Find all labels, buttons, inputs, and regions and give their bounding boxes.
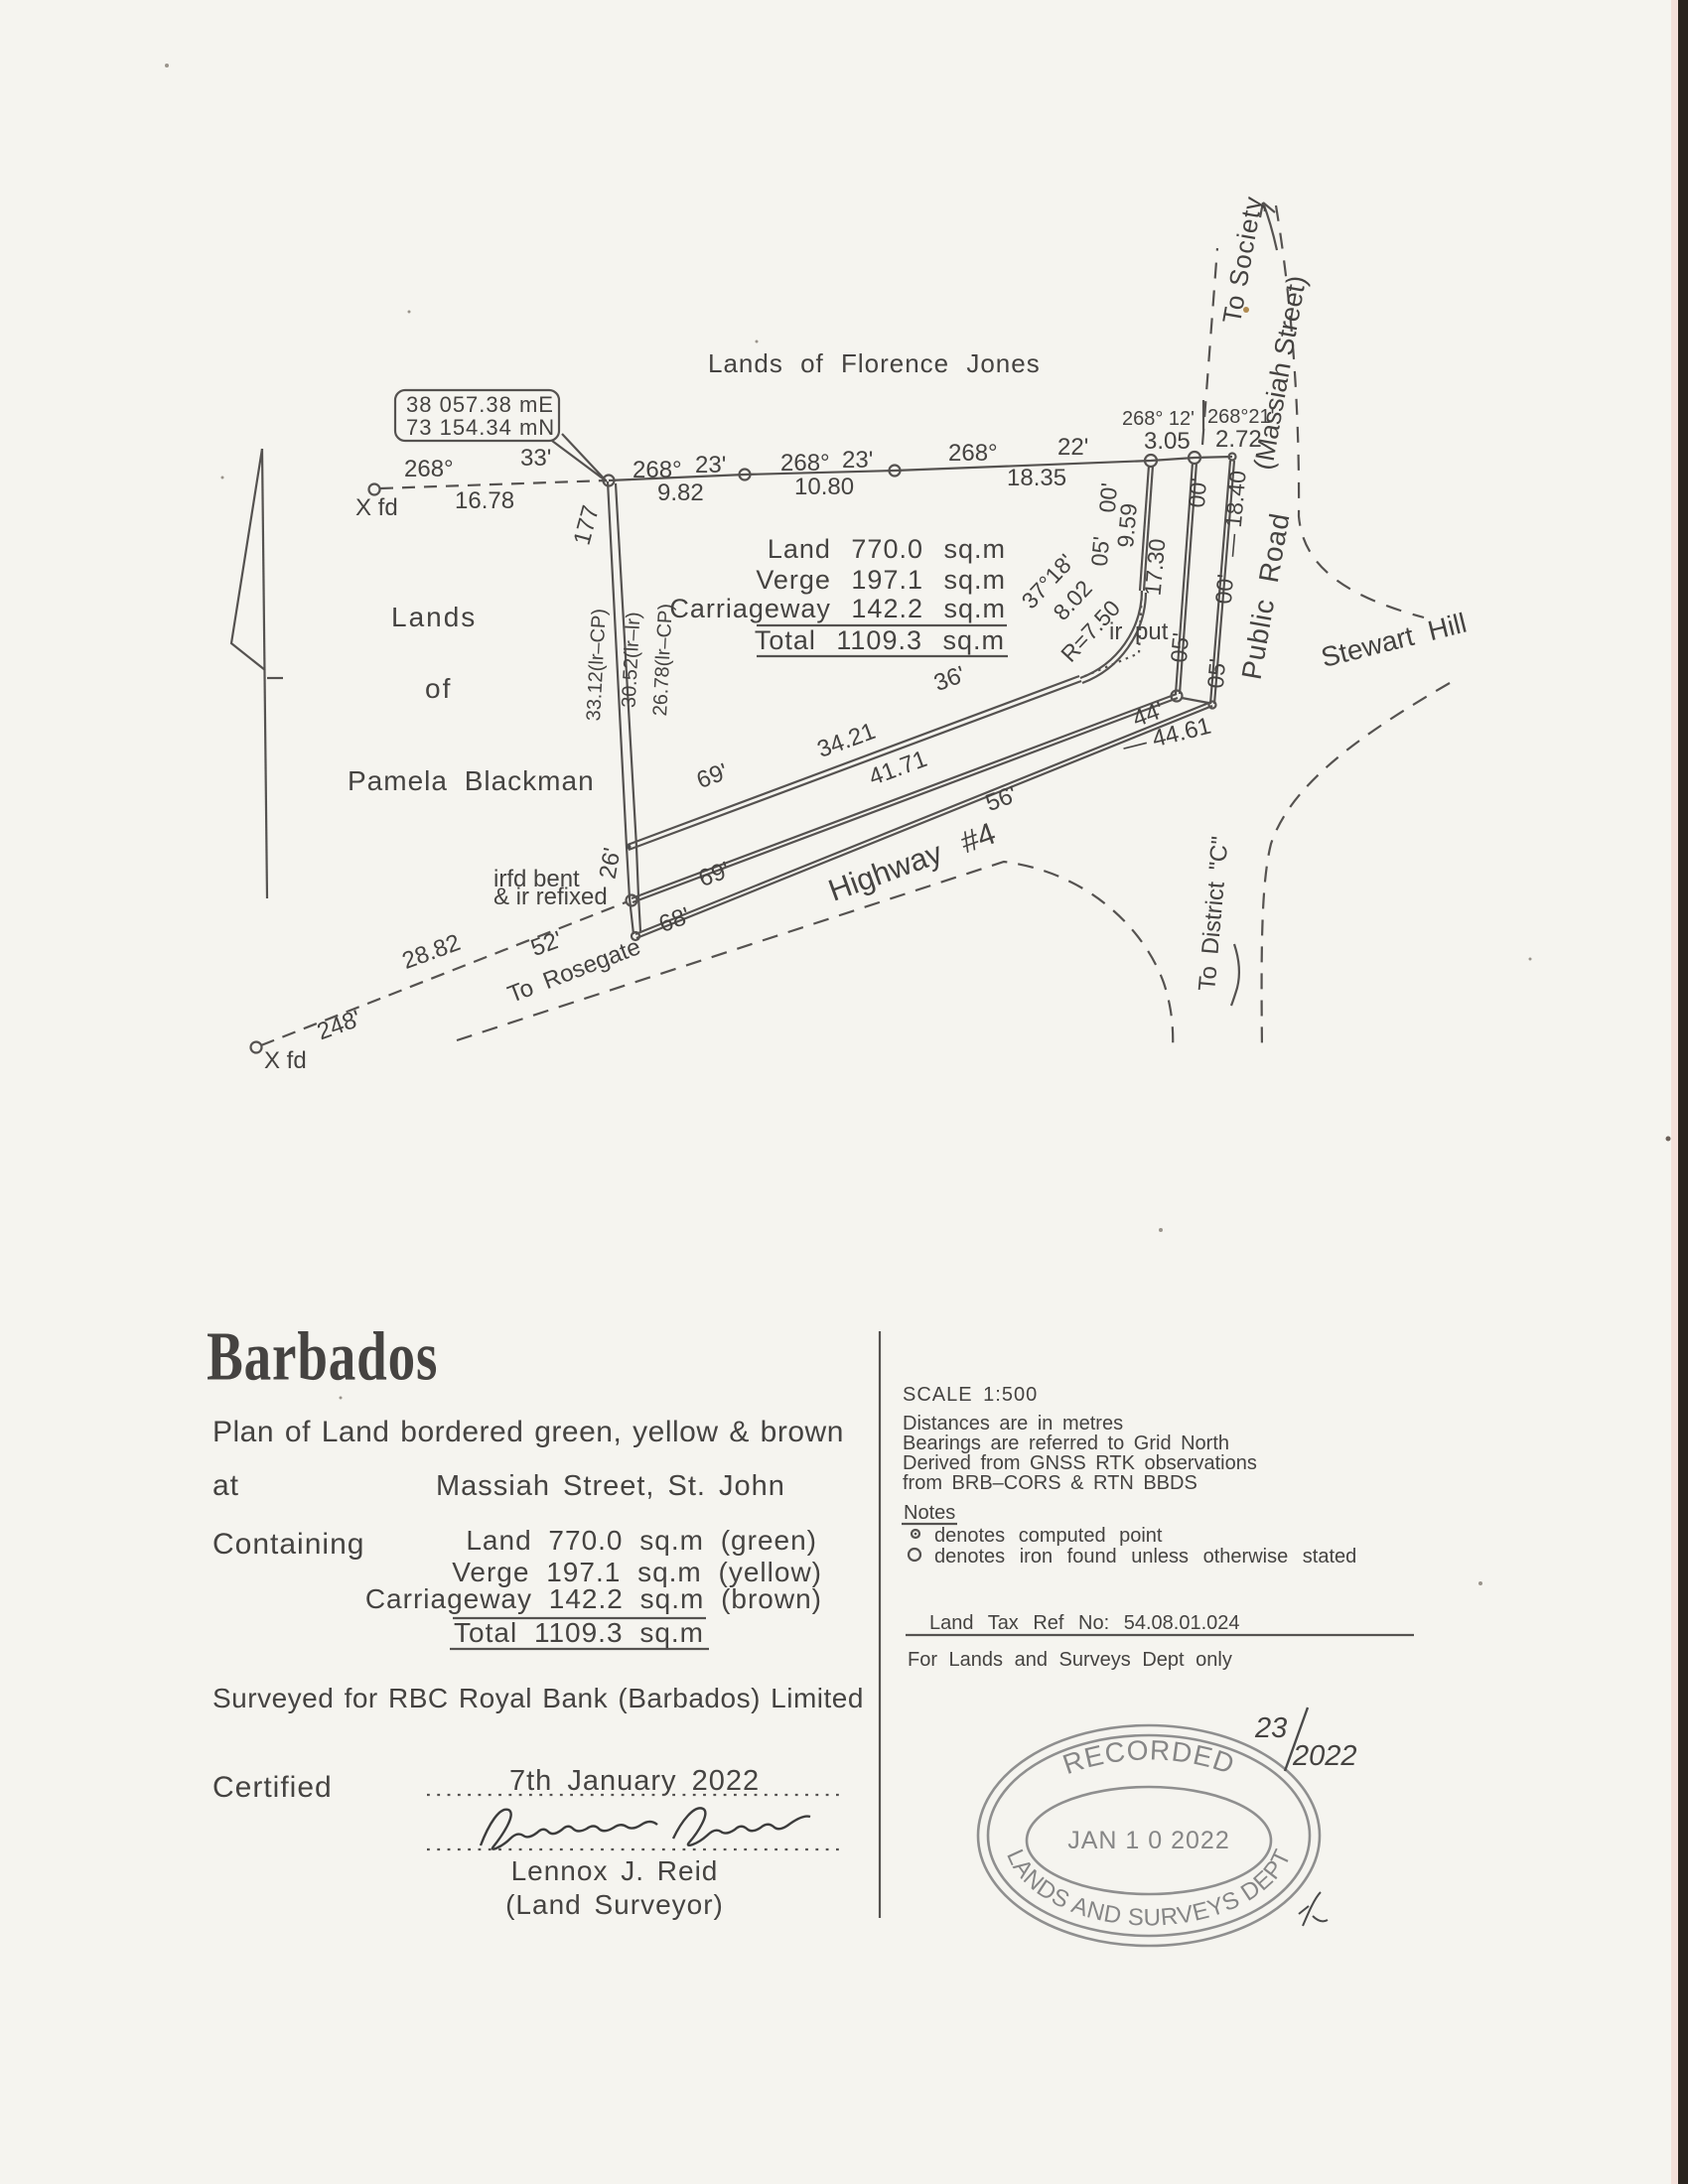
svg-text:9.82: 9.82 <box>657 479 704 506</box>
svg-text:23: 23 <box>1254 1712 1287 1744</box>
svg-text:Total 1109.3 sq.m: Total 1109.3 sq.m <box>454 1617 704 1648</box>
svg-text:268°: 268° <box>780 450 830 477</box>
svg-text:33': 33' <box>520 445 551 472</box>
svg-text:268°: 268° <box>948 440 998 467</box>
svg-text:Land 770.0 sq.m: Land 770.0 sq.m <box>768 534 1006 564</box>
svg-text:(Land Surveyor): (Land Surveyor) <box>505 1889 724 1920</box>
svg-text:Containing: Containing <box>212 1528 364 1561</box>
svg-text:9.59: 9.59 <box>1112 502 1142 549</box>
svg-text:73 154.34 mN: 73 154.34 mN <box>406 415 555 440</box>
svg-text:Carriageway 142.2 sq.m: Carriageway 142.2 sq.m <box>669 594 1006 623</box>
svg-text:22': 22' <box>1057 434 1088 461</box>
svg-text:268°: 268° <box>404 456 454 482</box>
svg-text:Land 770.0 sq.m (green): Land 770.0 sq.m (green) <box>466 1525 817 1556</box>
svg-text:from BRB–CORS & RTN BBDS: from BRB–CORS & RTN BBDS <box>903 1472 1197 1494</box>
svg-text:17.30: 17.30 <box>1140 537 1171 597</box>
svg-text:Lennox J. Reid: Lennox J. Reid <box>511 1855 719 1886</box>
svg-text:Land Tax Ref No: 54.08.01.024: Land Tax Ref No: 54.08.01.024 <box>929 1612 1240 1634</box>
svg-text:JAN 1 0 2022: JAN 1 0 2022 <box>1067 1827 1230 1854</box>
svg-text:00': 00' <box>1184 477 1212 508</box>
svg-text:X fd: X fd <box>355 494 398 521</box>
svg-text:Pamela Blackman: Pamela Blackman <box>348 765 595 796</box>
svg-text:Distances are in metres: Distances are in metres <box>903 1413 1123 1434</box>
svg-text:Barbados: Barbados <box>207 1317 438 1395</box>
svg-text:2022: 2022 <box>1292 1740 1357 1772</box>
svg-text:Total 1109.3 sq.m: Total 1109.3 sq.m <box>755 625 1005 655</box>
svg-text:7th January 2022: 7th January 2022 <box>509 1765 760 1797</box>
svg-text:of: of <box>425 673 452 704</box>
svg-text:Surveyed for RBC Royal Bank (B: Surveyed for RBC Royal Bank (Barbados) L… <box>212 1683 864 1713</box>
svg-text:SCALE 1:500: SCALE 1:500 <box>903 1384 1038 1406</box>
svg-text:Lands of Florence Jones: Lands of Florence Jones <box>708 348 1041 378</box>
svg-text:Lands: Lands <box>391 602 477 632</box>
svg-text:Notes: Notes <box>904 1502 955 1524</box>
svg-text:Carriageway 142.2 sq.m (bro: Carriageway 142.2 sq.m (brown) <box>365 1583 822 1614</box>
svg-text:& ir refixed: & ir refixed <box>493 884 608 910</box>
svg-text:at: at <box>212 1469 239 1502</box>
svg-text:05': 05' <box>1086 535 1115 567</box>
svg-text:23': 23' <box>695 452 726 478</box>
svg-text:Massiah Street, St. John: Massiah Street, St. John <box>436 1470 785 1502</box>
svg-text:denotes iron found unless othe: denotes iron found unless otherwise stat… <box>934 1546 1356 1568</box>
svg-text:denotes computed point: denotes computed point <box>934 1525 1163 1547</box>
svg-text:26': 26' <box>595 846 627 881</box>
svg-text:For Lands and Surveys Dept onl: For Lands and Surveys Dept only <box>908 1649 1232 1671</box>
svg-text:18.35: 18.35 <box>1007 465 1066 491</box>
svg-text:23': 23' <box>842 447 873 474</box>
svg-text:10.80: 10.80 <box>794 474 854 500</box>
svg-text:16.78: 16.78 <box>455 487 514 514</box>
svg-text:38 057.38 mE: 38 057.38 mE <box>406 392 554 417</box>
svg-text:X fd: X fd <box>264 1047 307 1074</box>
svg-text:00': 00' <box>1210 573 1239 605</box>
svg-text:Bearings are referred to Grid: Bearings are referred to Grid North <box>903 1433 1229 1454</box>
svg-text:268° 12': 268° 12' <box>1122 408 1195 430</box>
svg-text:Plan of Land bordered green, y: Plan of Land bordered green, yellow & br… <box>212 1416 844 1448</box>
svg-text:05': 05' <box>1202 657 1231 689</box>
svg-text:ir put: ir put <box>1109 618 1169 645</box>
svg-text:05': 05' <box>1166 631 1195 663</box>
svg-text:Derived from GNSS RTK observat: Derived from GNSS RTK observations <box>903 1452 1257 1474</box>
svg-text:Certified: Certified <box>212 1771 333 1804</box>
svg-text:3.05: 3.05 <box>1144 428 1191 455</box>
svg-text:Verge 197.1 sq.m: Verge 197.1 sq.m <box>756 565 1006 595</box>
